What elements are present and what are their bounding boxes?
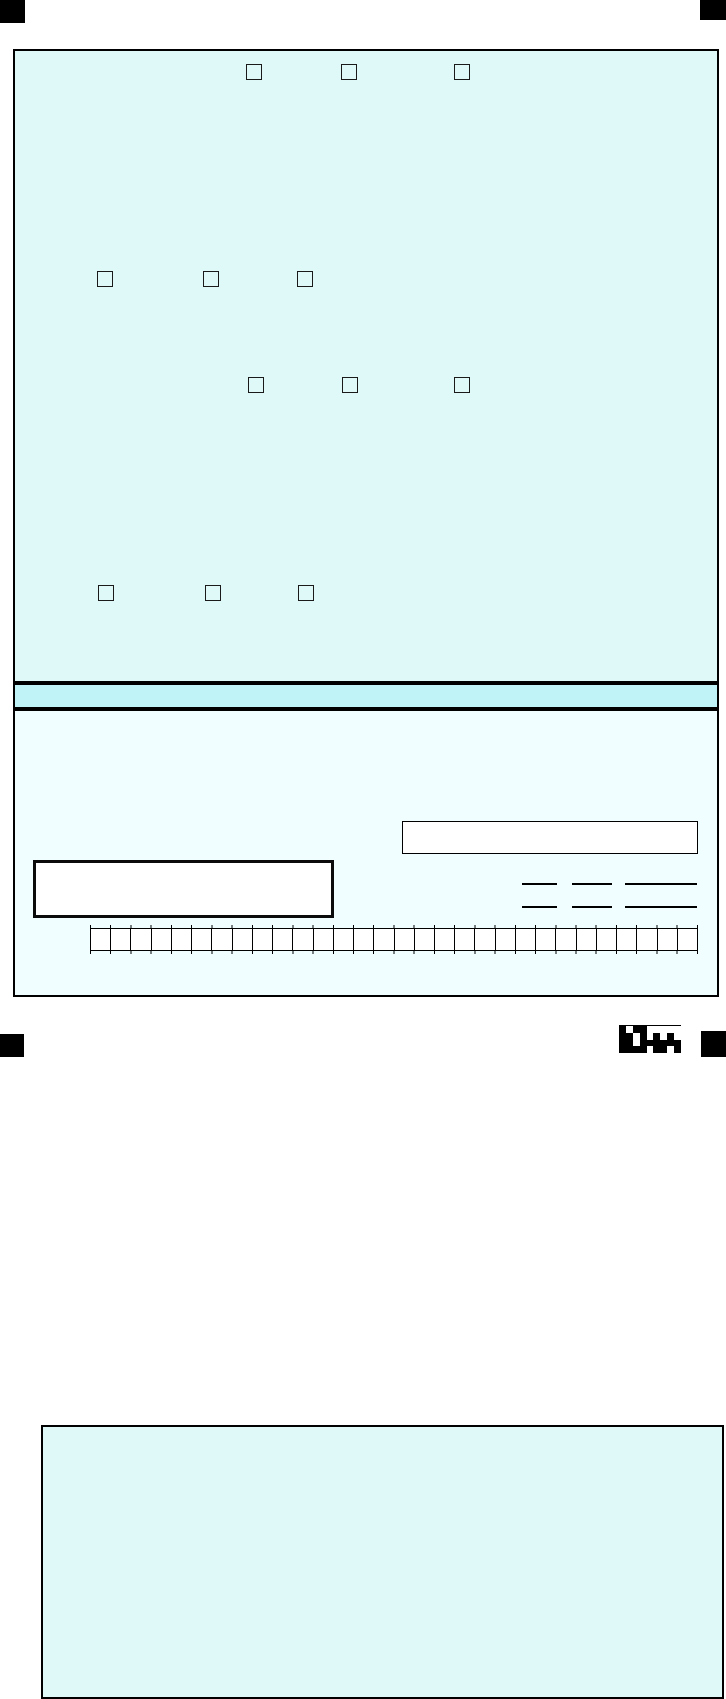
comb-cell[interactable] xyxy=(678,929,698,950)
barcode-bit xyxy=(619,1040,626,1047)
barcode-bit xyxy=(640,1040,647,1047)
barcode-bit xyxy=(640,1046,647,1053)
write-line-row2-seg3[interactable] xyxy=(625,906,697,908)
comb-cell[interactable] xyxy=(637,929,657,950)
barcode-bit xyxy=(674,1033,681,1040)
comb-cell[interactable] xyxy=(556,929,576,950)
comb-cell[interactable] xyxy=(395,929,415,950)
barcode-bit xyxy=(626,1033,633,1040)
bottom-panel-inner xyxy=(41,1425,724,1699)
barcode-bit xyxy=(674,1046,681,1053)
entry-field-box[interactable] xyxy=(402,821,698,854)
barcode-bit xyxy=(619,1026,626,1033)
comb-cell[interactable] xyxy=(314,929,334,950)
barcode-bit xyxy=(633,1046,640,1053)
barcode-bit xyxy=(640,1026,647,1033)
barcode-bit xyxy=(660,1040,667,1047)
top-panel xyxy=(13,49,719,683)
comb-cell[interactable] xyxy=(273,929,293,950)
comb-cell[interactable] xyxy=(354,929,374,950)
checkbox-row4-col3[interactable] xyxy=(298,585,314,601)
comb-cell[interactable] xyxy=(455,929,475,950)
write-line-row1-seg3[interactable] xyxy=(625,883,697,885)
top-right-registration-mark xyxy=(700,0,726,20)
barcode-bit xyxy=(660,1033,667,1040)
divider-strip xyxy=(13,683,719,709)
address-window-box[interactable] xyxy=(33,860,334,918)
comb-cell[interactable] xyxy=(192,929,212,950)
checkbox-row1-col2[interactable] xyxy=(341,64,357,80)
barcode-bit xyxy=(674,1026,681,1033)
barcode-bit xyxy=(667,1046,674,1053)
comb-cell[interactable] xyxy=(496,929,516,950)
barcode-bit xyxy=(653,1040,660,1047)
comb-cell[interactable] xyxy=(334,929,354,950)
checkbox-row2-col3[interactable] xyxy=(297,271,313,287)
comb-cell[interactable] xyxy=(131,929,151,950)
barcode-bit xyxy=(660,1026,667,1033)
comb-cell[interactable] xyxy=(516,929,536,950)
barcode-bit xyxy=(647,1040,654,1047)
barcode-bit xyxy=(626,1046,633,1053)
top-left-registration-mark xyxy=(0,0,25,23)
checkbox-row3-col2[interactable] xyxy=(342,377,358,393)
write-line-row1-seg2[interactable] xyxy=(572,883,612,885)
barcode-bit xyxy=(633,1033,640,1040)
checkbox-row4-col2[interactable] xyxy=(205,585,221,601)
comb-cell[interactable] xyxy=(152,929,172,950)
scanned-form-page xyxy=(0,0,726,1057)
comb-cell[interactable] xyxy=(536,929,556,950)
comb-cell[interactable] xyxy=(293,929,313,950)
comb-cell[interactable] xyxy=(90,929,111,950)
checkbox-row2-col1[interactable] xyxy=(97,271,113,287)
barcode-bit xyxy=(626,1040,633,1047)
barcode-bit xyxy=(667,1040,674,1047)
comb-cell[interactable] xyxy=(253,929,273,950)
barcode-bit xyxy=(647,1026,654,1033)
checkbox-row3-col1[interactable] xyxy=(248,377,264,393)
comb-cell[interactable] xyxy=(617,929,637,950)
barcode-bit xyxy=(619,1033,626,1040)
barcode-bit xyxy=(633,1040,640,1047)
checkbox-row1-col1[interactable] xyxy=(246,64,262,80)
write-line-row2-seg2[interactable] xyxy=(572,906,612,908)
bottom-left-registration-mark xyxy=(0,1034,24,1057)
barcode-bit xyxy=(653,1033,660,1040)
barcode-bit xyxy=(647,1046,654,1053)
bottom-right-registration-mark xyxy=(701,1031,726,1057)
barcode-bit xyxy=(653,1026,660,1033)
comb-cell[interactable] xyxy=(597,929,617,950)
comb-cell[interactable] xyxy=(415,929,435,950)
comb-cell[interactable] xyxy=(577,929,597,950)
write-line-row1-seg1[interactable] xyxy=(522,883,557,885)
comb-cell[interactable] xyxy=(435,929,455,950)
comb-cell[interactable] xyxy=(658,929,678,950)
checkbox-row2-col2[interactable] xyxy=(203,271,219,287)
comb-cell[interactable] xyxy=(111,929,131,950)
comb-cell[interactable] xyxy=(475,929,495,950)
checkbox-row4-col1[interactable] xyxy=(98,585,114,601)
barcode-bit xyxy=(640,1033,647,1040)
checkbox-row1-col3[interactable] xyxy=(454,64,470,80)
checkbox-row3-col3[interactable] xyxy=(454,377,470,393)
comb-cell[interactable] xyxy=(212,929,232,950)
barcode-bit xyxy=(674,1040,681,1047)
barcode-pattern xyxy=(619,1025,681,1053)
write-line-row2-seg1[interactable] xyxy=(522,906,557,908)
comb-field[interactable] xyxy=(90,928,698,951)
barcode-bit xyxy=(626,1026,633,1033)
comb-cell[interactable] xyxy=(233,929,253,950)
barcode-bit xyxy=(667,1033,674,1040)
barcode-bit xyxy=(660,1046,667,1053)
barcode-bit xyxy=(647,1033,654,1040)
barcode-bit xyxy=(633,1026,640,1033)
barcode-bit xyxy=(619,1046,626,1053)
barcode-bit xyxy=(667,1026,674,1033)
comb-cell[interactable] xyxy=(374,929,394,950)
comb-cell[interactable] xyxy=(172,929,192,950)
barcode-bit xyxy=(653,1046,660,1053)
